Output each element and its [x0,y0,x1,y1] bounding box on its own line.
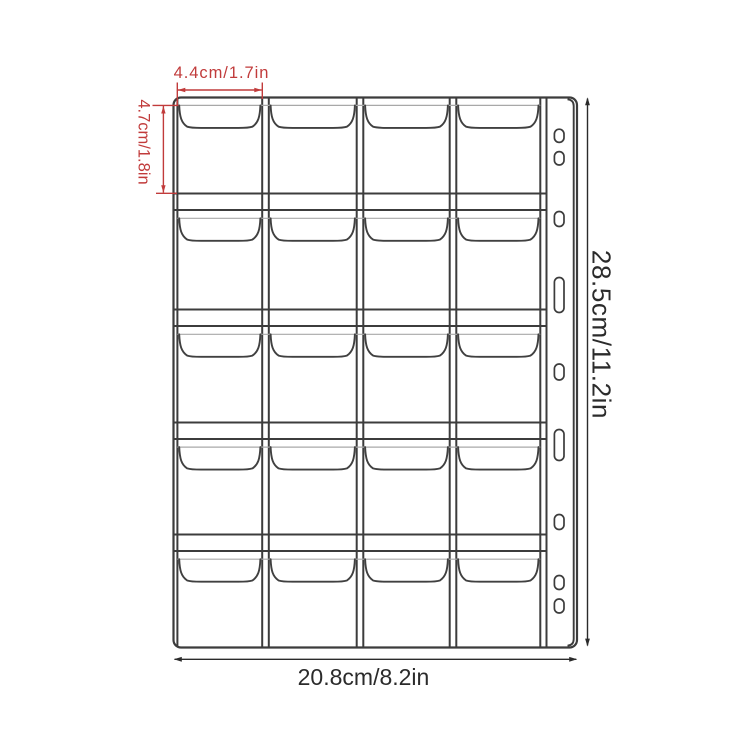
svg-text:28.5cm/11.2in: 28.5cm/11.2in [586,250,616,419]
svg-text:4.4cm/1.7in: 4.4cm/1.7in [174,64,270,82]
svg-text:20.8cm/8.2in: 20.8cm/8.2in [298,664,430,690]
svg-text:4.7cm/1.8in: 4.7cm/1.8in [135,99,153,184]
